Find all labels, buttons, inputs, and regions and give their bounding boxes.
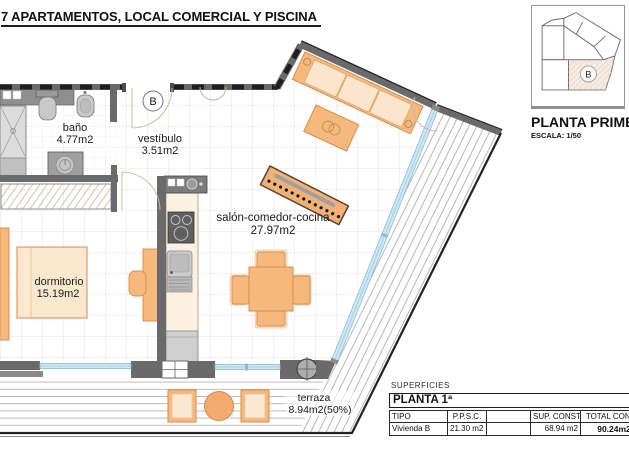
desk-chair [129, 271, 146, 296]
cell-total: 90.24m2 [581, 423, 629, 435]
room-label-terraza: terraza [298, 392, 331, 404]
room-area-terraza: 8.94m2(50%) [288, 404, 351, 416]
wardrobe [0, 228, 9, 340]
room-label-salon: salón-comedor-cocina [216, 212, 330, 224]
toilet [36, 90, 58, 120]
key-plan-drawing: B [532, 6, 624, 106]
key-plan-scale: ESCALA: 1/50 [531, 131, 581, 140]
bedroom-window [40, 364, 131, 369]
col-sup-const: SUP. CONST. [531, 411, 581, 422]
key-plan-caption: PLANTA PRIMERA [531, 114, 629, 130]
room-area-dormitorio: 15.19m2 [37, 288, 80, 300]
terrace-table [205, 392, 234, 421]
shower [0, 106, 26, 180]
room-area-salon: 27.97m2 [251, 225, 296, 237]
hob [168, 212, 194, 243]
room-label-bano: baño [63, 122, 87, 134]
washing-machine [48, 152, 83, 178]
cell-ppsc: 21.30 m2 [448, 423, 487, 435]
surfaces-floor-row: PLANTA 1ª [389, 393, 629, 408]
surfaces-label: SUPERFICIES [391, 381, 629, 390]
room-area-bano: 4.77m2 [57, 134, 94, 146]
surfaces-header-row: TIPO P.P.S.C. SUP. CONST. TOTAL CONST. [390, 411, 629, 423]
entrance-unit-label: B [149, 96, 156, 108]
kitchen-sink [167, 251, 192, 277]
dining-table [249, 267, 293, 311]
col-tipo: TIPO [390, 411, 448, 422]
kitchen-wall [157, 176, 166, 362]
col-ppsc: P.P.S.C. [448, 411, 487, 422]
fridge [166, 331, 198, 362]
room-area-vestibulo: 3.51m2 [142, 145, 179, 157]
terrace-furniture [168, 390, 269, 422]
shaft [162, 361, 188, 378]
room-label-dormitorio: dormitorio [35, 276, 84, 288]
key-plan-unit-label: B [585, 69, 591, 80]
key-plan-box: B [531, 5, 625, 109]
surfaces-block: SUPERFICIES PLANTA 1ª TIPO P.P.S.C. SUP.… [389, 381, 629, 436]
cell-blank [487, 423, 531, 435]
cell-sup-const: 68.94 m2 [531, 423, 581, 435]
floor-plan-sheet: { "title": "7 APARTAMENTOS, LOCAL COMERC… [0, 0, 629, 476]
room-label-vestibulo: vestíbulo [138, 133, 182, 145]
salon-window [215, 364, 280, 371]
kitchen-sink-top-unit [164, 176, 207, 193]
wardrobe-closet [1, 184, 111, 209]
col-blank [487, 411, 531, 422]
sheet-title: 7 APARTAMENTOS, LOCAL COMERCIAL Y PISCIN… [1, 9, 321, 27]
cell-tipo: Vivienda B [390, 423, 448, 435]
surfaces-table: TIPO P.P.S.C. SUP. CONST. TOTAL CONST. V… [389, 410, 629, 436]
surfaces-data-row: Vivienda B 21.30 m2 68.94 m2 90.24m2 [390, 423, 629, 435]
dishwasher [167, 277, 192, 292]
col-total-const: TOTAL CONST. [581, 411, 629, 422]
